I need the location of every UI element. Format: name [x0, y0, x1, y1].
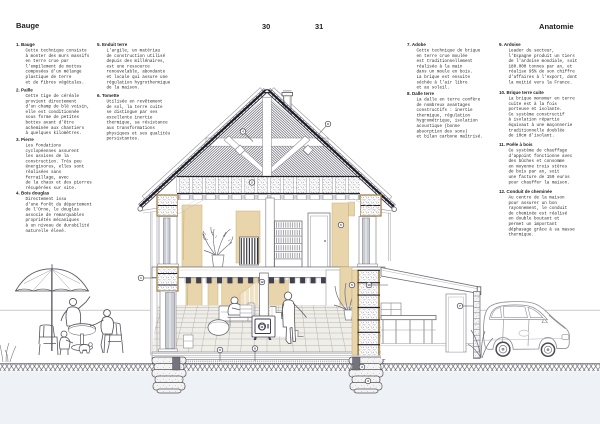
svg-text:Ce système constructif: Ce système constructif — [509, 112, 566, 117]
svg-text:régulation hygrothermique: régulation hygrothermique — [107, 80, 171, 85]
svg-text:à un niveau de durabilité: à un niveau de durabilité — [26, 224, 90, 229]
svg-text:6. Tomette: 6. Tomette — [97, 93, 120, 98]
svg-text:9. Ardoise: 9. Ardoise — [499, 42, 521, 47]
svg-text:l'empilement de mottes: l'empilement de mottes — [26, 64, 83, 69]
svg-text:naturelle élevé.: naturelle élevé. — [26, 229, 67, 234]
svg-text:10: 10 — [367, 283, 371, 287]
svg-text:de cheminée est réalisé: de cheminée est réalisé — [509, 211, 568, 216]
svg-text:La brique monomur en terre: La brique monomur en terre — [509, 97, 576, 102]
svg-text:plastique de terre: plastique de terre — [26, 75, 72, 80]
svg-text:de bois par an, soit: de bois par an, soit — [509, 170, 560, 175]
svg-text:l'Espagne produit un tiers: l'Espagne produit un tiers — [509, 54, 576, 59]
svg-text:équivaut à une maçonnerie: équivaut à une maçonnerie — [509, 123, 573, 128]
svg-text:réalisées sans: réalisées sans — [26, 170, 62, 175]
svg-text:permet un important: permet un important — [509, 222, 558, 227]
svg-text:séchée à l'air libre: séchée à l'air libre — [417, 80, 468, 85]
svg-text:ferraillage, avec: ferraillage, avec — [26, 175, 70, 180]
svg-text:8. Dalle terre: 8. Dalle terre — [407, 91, 435, 96]
svg-text:Les fondations: Les fondations — [26, 144, 62, 149]
svg-text:associe de remarquables: associe de remarquables — [26, 213, 85, 218]
svg-text:elle est conditionnée: elle est conditionnée — [26, 110, 80, 115]
svg-text:déphasage grâce à sa masse: déphasage grâce à sa masse — [509, 227, 576, 232]
svg-text:en moyenne trois stères: en moyenne trois stères — [509, 164, 568, 169]
svg-text:provient directement: provient directement — [26, 99, 77, 104]
svg-text:excellente inertie: excellente inertie — [107, 115, 153, 120]
svg-text:et bilan carbone maîtrisé.: et bilan carbone maîtrisé. — [417, 135, 483, 140]
svg-text:10. Brique terre cuite: 10. Brique terre cuite — [499, 90, 544, 95]
svg-text:Utilisée en revêtement: Utilisée en revêtement — [107, 100, 164, 105]
svg-text:et locale qui assure une: et locale qui assure une — [107, 75, 169, 80]
svg-text:Cette technique consiste: Cette technique consiste — [26, 49, 88, 54]
svg-text:traditionnelle doublée: traditionnelle doublée — [509, 128, 566, 133]
svg-text:composées d'un mélange: composées d'un mélange — [26, 70, 83, 75]
svg-text:thermique, régulation: thermique, régulation — [417, 113, 471, 118]
svg-text:12: 12 — [260, 280, 264, 284]
svg-text:absorption des sons): absorption des sons) — [417, 129, 468, 134]
svg-text:L'argile, un matériau: L'argile, un matériau — [107, 49, 161, 54]
svg-text:Anatomie: Anatomie — [539, 22, 574, 31]
svg-text:cyclopéennes assurent: cyclopéennes assurent — [26, 149, 80, 154]
svg-text:thermique, sa résistance: thermique, sa résistance — [107, 121, 169, 126]
svg-text:de 10cm d'isolant.: de 10cm d'isolant. — [509, 134, 555, 139]
svg-text:de la maison.: de la maison. — [107, 86, 140, 91]
svg-text:de nombreux avantages: de nombreux avantages — [417, 103, 471, 108]
svg-text:Cette tige de céréale: Cette tige de céréale — [26, 94, 80, 99]
svg-text:thermique.: thermique. — [509, 233, 535, 238]
svg-text:hygrométrique, isolation: hygrométrique, isolation — [417, 119, 479, 124]
svg-text:4. Bois douglas: 4. Bois douglas — [16, 191, 50, 196]
svg-text:est une ressource: est une ressource — [107, 64, 151, 69]
svg-text:2. Paille: 2. Paille — [16, 88, 33, 93]
svg-text:11. Poêle à bois: 11. Poêle à bois — [499, 142, 533, 147]
svg-text:renouvelable, abondante: renouvelable, abondante — [107, 70, 166, 75]
svg-text:30: 30 — [262, 22, 270, 31]
svg-text:de construction utilisé: de construction utilisé — [107, 54, 166, 59]
svg-text:pour assurer un bon: pour assurer un bon — [509, 201, 558, 206]
svg-text:5. Enduit terre: 5. Enduit terre — [97, 42, 128, 47]
svg-text:3. Pierre: 3. Pierre — [16, 137, 34, 142]
svg-text:énergivores, elles sont: énergivores, elles sont — [26, 165, 85, 170]
svg-text:31: 31 — [315, 22, 323, 31]
svg-text:La dalle en terre confère: La dalle en terre confère — [417, 98, 481, 103]
svg-text:en double boutant et: en double boutant et — [509, 217, 560, 222]
svg-text:propriétés mécaniques: propriétés mécaniques — [26, 218, 80, 223]
svg-text:cuite est à la fois: cuite est à la fois — [509, 102, 558, 107]
svg-text:et de fibres végétales.: et de fibres végétales. — [26, 80, 85, 85]
svg-text:7. Adobe: 7. Adobe — [407, 42, 426, 47]
svg-text:acheminée aux chantiers: acheminée aux chantiers — [26, 126, 85, 131]
svg-text:de sol, la terre cuite: de sol, la terre cuite — [107, 105, 164, 110]
svg-text:1. Bauge: 1. Bauge — [16, 42, 35, 47]
svg-text:à quelques kilomètres.: à quelques kilomètres. — [26, 131, 82, 136]
svg-text:réalisée à la main: réalisée à la main — [417, 64, 463, 69]
svg-text:12. Conduit de cheminée: 12. Conduit de cheminée — [499, 189, 553, 194]
svg-text:dans un moule en bois.: dans un moule en bois. — [417, 70, 473, 75]
svg-text:la moitié vers la France.: la moitié vers la France. — [509, 80, 573, 85]
svg-text:Directement issu: Directement issu — [26, 197, 67, 202]
svg-text:une facture de 150 euros: une facture de 150 euros — [509, 175, 571, 180]
svg-text:d'une forêt du département: d'une forêt du département — [26, 202, 93, 207]
svg-text:aux transformations: aux transformations — [107, 126, 156, 131]
svg-text:Ce système de chauffage: Ce système de chauffage — [509, 149, 568, 154]
svg-text:bottes avant d'être: bottes avant d'être — [26, 121, 75, 126]
svg-text:sous forme de petites: sous forme de petites — [26, 115, 80, 120]
svg-text:à isolation répartie: à isolation répartie — [509, 118, 560, 123]
svg-text:d'appoint fonctionne avec: d'appoint fonctionne avec — [509, 154, 573, 159]
svg-text:et au soleil.: et au soleil. — [417, 86, 450, 91]
svg-text:pour chauffer la maison.: pour chauffer la maison. — [509, 180, 570, 185]
svg-text:Bauge: Bauge — [16, 21, 39, 30]
svg-text:physiques et ses qualités: physiques et ses qualités — [107, 131, 171, 136]
svg-text:en terre crue moulée: en terre crue moulée — [417, 54, 468, 59]
svg-text:11: 11 — [260, 325, 264, 329]
svg-text:réalise 95% de son chiffre: réalise 95% de son chiffre — [509, 70, 576, 75]
svg-text:La brique est ensuite: La brique est ensuite — [417, 75, 471, 80]
svg-text:persistantes.: persistantes. — [107, 137, 140, 142]
svg-text:construction. Très peu: construction. Très peu — [26, 159, 83, 164]
svg-text:Cette technique de brique: Cette technique de brique — [417, 49, 481, 54]
svg-text:d'affaires à l'export, dont: d'affaires à l'export, dont — [509, 75, 578, 80]
svg-text:Au centre de la maison: Au centre de la maison — [509, 196, 566, 201]
svg-text:acoustique (bonne: acoustique (bonne — [417, 124, 461, 129]
svg-text:180.000 tonnes par an, et: 180.000 tonnes par an, et — [509, 64, 573, 69]
svg-text:Leader du secteur,: Leader du secteur, — [509, 49, 555, 54]
svg-text:à monter des murs massifs: à monter des murs massifs — [26, 54, 90, 59]
